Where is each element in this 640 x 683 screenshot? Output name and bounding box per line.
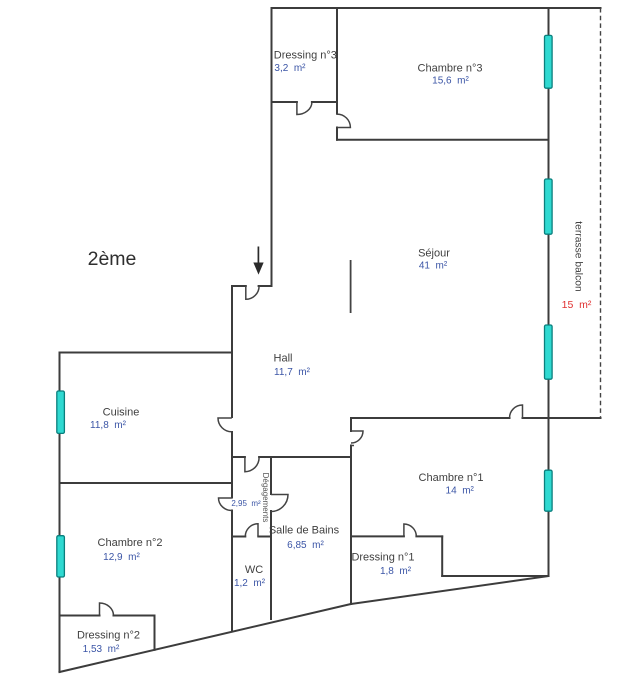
svg-text:2,95 m²: 2,95 m² — [231, 499, 261, 508]
svg-text:41 m²: 41 m² — [419, 261, 448, 272]
svg-text:15,6 m²: 15,6 m² — [432, 76, 469, 87]
svg-text:Chambre n°2: Chambre n°2 — [98, 537, 163, 549]
svg-text:15 m²: 15 m² — [562, 299, 592, 311]
svg-text:14 m²: 14 m² — [446, 486, 475, 497]
svg-text:2ème: 2ème — [88, 248, 137, 270]
svg-text:Dressing n°1: Dressing n°1 — [351, 552, 414, 564]
svg-text:Chambre n°3: Chambre n°3 — [418, 63, 483, 75]
svg-text:1,8 m²: 1,8 m² — [380, 566, 412, 577]
svg-text:12,9 m²: 12,9 m² — [103, 552, 140, 563]
svg-text:Hall: Hall — [274, 353, 293, 365]
svg-text:Séjour: Séjour — [418, 248, 450, 260]
svg-text:3,2 m²: 3,2 m² — [274, 63, 306, 74]
svg-text:Chambre n°1: Chambre n°1 — [419, 472, 484, 484]
svg-text:11,8 m²: 11,8 m² — [90, 420, 127, 431]
svg-text:Salle de Bains: Salle de Bains — [269, 525, 340, 537]
svg-text:Dressing n°3: Dressing n°3 — [274, 50, 337, 62]
svg-text:6,85 m²: 6,85 m² — [287, 540, 324, 551]
svg-text:1,2 m²: 1,2 m² — [234, 578, 266, 589]
svg-text:11,7 m²: 11,7 m² — [274, 367, 311, 378]
svg-text:terrasse balcon: terrasse balcon — [573, 221, 584, 292]
svg-text:Dressing n°2: Dressing n°2 — [77, 629, 140, 641]
svg-text:Cuisine: Cuisine — [103, 406, 140, 418]
svg-text:1,53 m²: 1,53 m² — [83, 644, 120, 655]
svg-text:WC: WC — [245, 564, 263, 576]
svg-text:Dégagements: Dégagements — [261, 473, 270, 523]
